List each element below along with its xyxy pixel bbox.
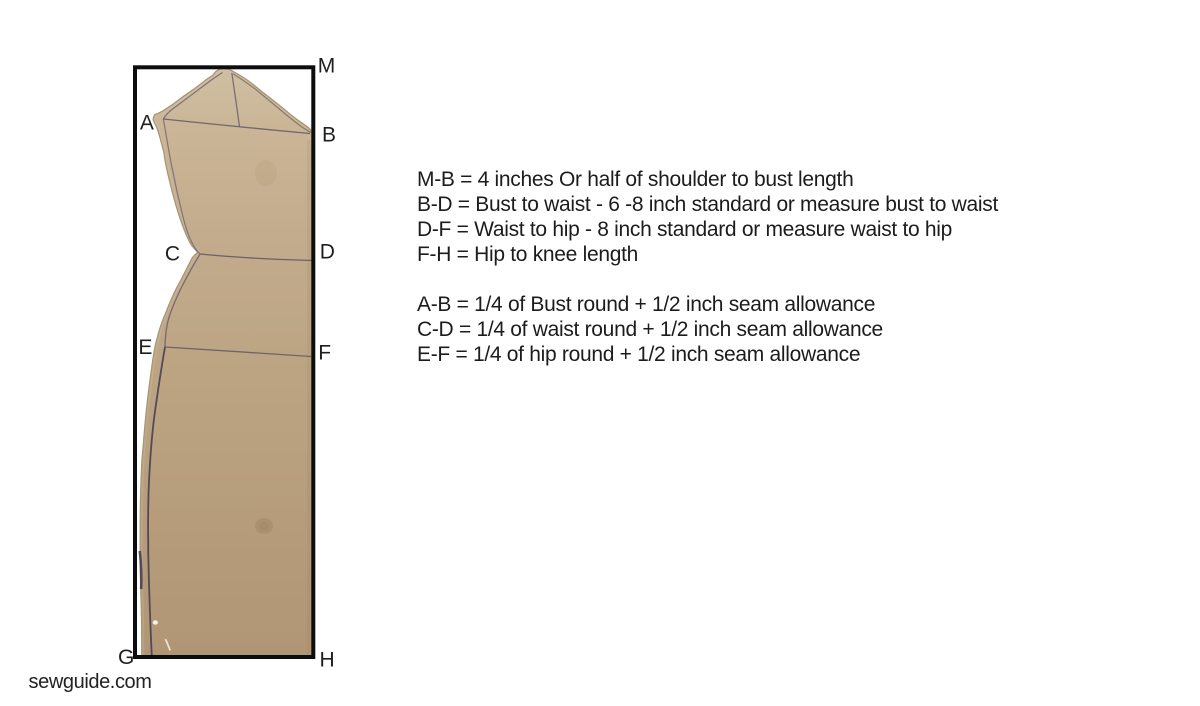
svg-text:E: E — [138, 336, 152, 359]
svg-text:F: F — [318, 341, 331, 364]
svg-text:M: M — [318, 54, 336, 77]
svg-text:B: B — [322, 124, 336, 147]
svg-text:H: H — [320, 648, 335, 671]
svg-text:A: A — [140, 111, 154, 134]
svg-text:C: C — [165, 243, 180, 266]
svg-text:G: G — [118, 646, 134, 669]
svg-text:D: D — [320, 240, 335, 263]
